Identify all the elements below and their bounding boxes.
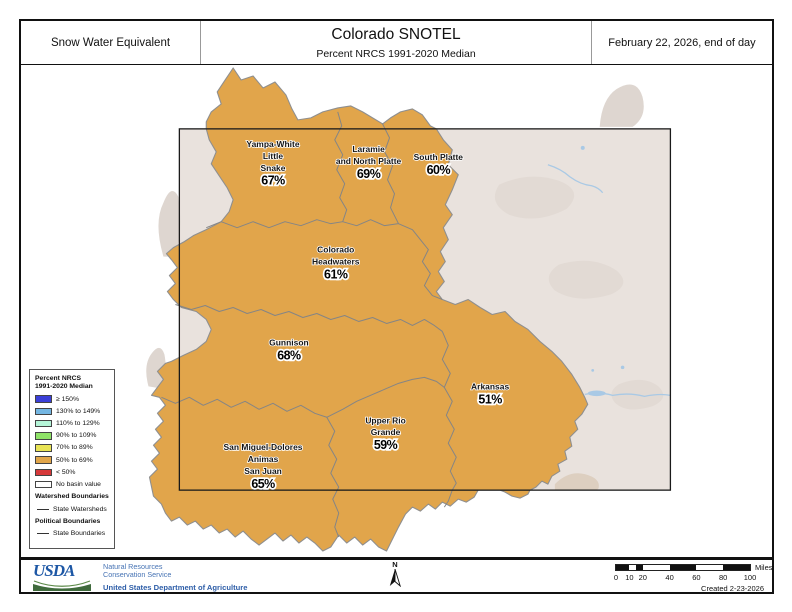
scale-tick-label: 20 xyxy=(639,573,647,582)
header-bar: Snow Water Equivalent Colorado SNOTEL Pe… xyxy=(19,19,774,66)
scale-segment xyxy=(696,565,723,570)
legend-item: No basin value xyxy=(35,481,114,489)
legend-items: ≥ 150%130% to 149%110% to 129%90% to 109… xyxy=(35,395,114,488)
header-title-cell: Colorado SNOTEL Percent NRCS 1991-2020 M… xyxy=(201,21,592,64)
scale-tick-label: 60 xyxy=(692,573,700,582)
colorado-watershed-map: Yampa-WhiteLittleSnake67%Laramieand Nort… xyxy=(21,65,772,557)
north-arrow: N xyxy=(387,561,403,592)
basin-percent-value: 69% xyxy=(357,167,381,181)
basin-name: South Platte xyxy=(414,152,464,162)
legend-title-line1: Percent NRCS xyxy=(35,375,114,383)
legend-item-label: 50% to 69% xyxy=(56,457,93,464)
legend-state-boundaries-row: State Boundaries xyxy=(35,530,114,538)
legend-swatch xyxy=(35,420,52,428)
legend-item-label: 110% to 129% xyxy=(56,420,100,427)
usda-logo: USDA xyxy=(33,563,93,591)
footer-bar: USDA Natural Resources Conservation Serv… xyxy=(19,558,774,594)
department-name: United States Department of Agriculture xyxy=(103,583,247,592)
map-title: Colorado SNOTEL xyxy=(331,26,460,44)
basin-percent-value: 51% xyxy=(478,392,502,406)
basin-percent-value: 59% xyxy=(374,438,398,452)
legend-swatch xyxy=(35,469,52,477)
basin-name: and North Platte xyxy=(336,156,402,166)
map-canvas: Yampa-WhiteLittleSnake67%Laramieand Nort… xyxy=(19,65,774,559)
legend-item-label: No basin value xyxy=(56,481,101,488)
scale-bar-track xyxy=(615,564,751,571)
legend-item: ≥ 150% xyxy=(35,395,114,403)
scale-segment xyxy=(616,565,629,570)
map-subtitle: Percent NRCS 1991-2020 Median xyxy=(316,48,475,60)
legend-item: 130% to 149% xyxy=(35,407,114,415)
basin-percent-value: 60% xyxy=(427,163,451,177)
basin-name: San Miguel-Dolores xyxy=(224,442,303,452)
legend-swatch xyxy=(35,481,52,489)
legend-state-watersheds-label: State Watersheds xyxy=(53,506,107,513)
usda-swoosh-icon xyxy=(33,580,91,592)
scale-segment xyxy=(643,565,670,570)
basin-percent-value: 61% xyxy=(324,268,348,282)
header-left-cell: Snow Water Equivalent xyxy=(21,21,201,64)
legend-box: Percent NRCS 1991-2020 Median ≥ 150%130%… xyxy=(29,369,115,549)
legend-swatch xyxy=(35,444,52,452)
basin-name: Headwaters xyxy=(312,257,360,267)
scale-unit-label: Miles xyxy=(755,563,773,572)
legend-swatch xyxy=(35,432,52,440)
legend-item: 110% to 129% xyxy=(35,420,114,428)
legend-watershed-heading: Watershed Boundaries xyxy=(35,493,114,502)
north-label: N xyxy=(387,561,403,569)
created-date: Created 2-23-2026 xyxy=(701,584,764,593)
legend-item-label: 70% to 89% xyxy=(56,444,93,451)
legend-item-label: 90% to 109% xyxy=(56,432,96,439)
watershed-line-symbol xyxy=(37,509,49,510)
basin-name: Animas xyxy=(248,454,279,464)
scale-segment xyxy=(629,565,636,570)
legend-swatch xyxy=(35,456,52,464)
legend-item: < 50% xyxy=(35,468,114,476)
basin-name: Colorado xyxy=(317,245,354,255)
north-arrow-icon xyxy=(389,569,401,587)
agency-name: Natural Resources Conservation Service U… xyxy=(103,563,247,592)
basin-name: Gunnison xyxy=(269,337,308,347)
legend-swatch xyxy=(35,408,52,416)
scale-segment xyxy=(723,565,750,570)
basin-name: Arkansas xyxy=(471,381,509,391)
scale-tick-label: 10 xyxy=(625,573,633,582)
snotel-report-page: Snow Water Equivalent Colorado SNOTEL Pe… xyxy=(0,0,792,612)
basin-percent-value: 68% xyxy=(277,348,301,362)
legend-item: 90% to 109% xyxy=(35,432,114,440)
parameter-label: Snow Water Equivalent xyxy=(51,37,170,49)
basin-name: San Juan xyxy=(244,466,282,476)
date-label: February 22, 2026, end of day xyxy=(608,37,755,49)
legend-item: 50% to 69% xyxy=(35,456,114,464)
scale-tick-label: 0 xyxy=(614,573,618,582)
scale-tick-label: 100 xyxy=(744,573,757,582)
basin-percent-value: 67% xyxy=(261,174,285,188)
legend-swatch xyxy=(35,395,52,403)
basin-name: Grande xyxy=(371,427,401,437)
legend-item-label: < 50% xyxy=(56,469,75,476)
usda-block: USDA Natural Resources Conservation Serv… xyxy=(33,563,247,592)
basin-name: Snake xyxy=(261,163,286,173)
legend-political-heading: Political Boundaries xyxy=(35,518,114,527)
basin-name: Yampa-White xyxy=(246,139,299,149)
usda-wordmark: USDA xyxy=(33,563,93,579)
scale-tick-label: 80 xyxy=(719,573,727,582)
legend-item: 70% to 89% xyxy=(35,444,114,452)
scale-bar: Miles 01020406080100 xyxy=(615,564,775,571)
legend-state-boundaries-label: State Boundaries xyxy=(53,530,105,537)
legend-title-line2: 1991-2020 Median xyxy=(35,383,114,391)
scale-tick-label: 40 xyxy=(665,573,673,582)
header-date-cell: February 22, 2026, end of day xyxy=(592,21,772,64)
basin-name: Little xyxy=(263,151,283,161)
agency-line2: Conservation Service xyxy=(103,571,247,579)
state-boundary-line-symbol xyxy=(37,533,49,534)
legend-state-watersheds-row: State Watersheds xyxy=(35,505,114,513)
basin-name: Laramie xyxy=(352,144,385,154)
legend-item-label: 130% to 149% xyxy=(56,408,100,415)
basin-name: Upper Rio xyxy=(365,415,405,425)
scale-segment xyxy=(670,565,697,570)
basin-percent-value: 65% xyxy=(251,477,275,491)
scale-segment xyxy=(636,565,643,570)
legend-item-label: ≥ 150% xyxy=(56,396,79,403)
